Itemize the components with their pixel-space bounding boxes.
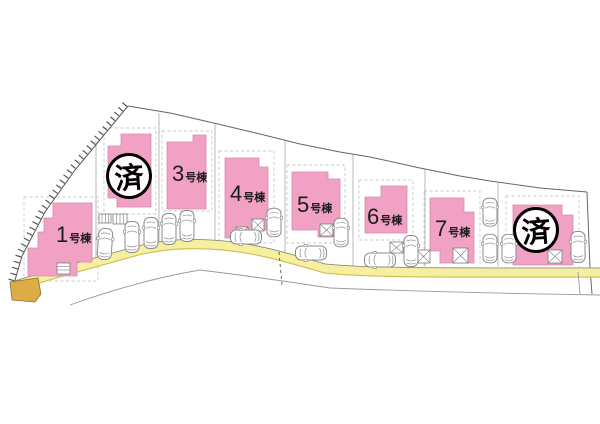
building-7-label: 7号棟	[435, 218, 470, 240]
building-1-number: 1	[56, 224, 68, 246]
shed-icon	[320, 224, 333, 236]
building-4-number: 4	[230, 183, 242, 205]
shed-icon	[548, 250, 562, 263]
shed-icon	[417, 250, 430, 263]
car-icon	[296, 244, 327, 261]
building-5-number: 5	[297, 194, 309, 216]
shed-icon	[453, 248, 468, 263]
building-6-label: 6号棟	[367, 206, 402, 228]
car-icon	[402, 236, 419, 267]
car-icon	[142, 218, 159, 249]
steps-icon	[57, 263, 70, 274]
building-7-number: 7	[435, 218, 447, 240]
car-icon	[569, 232, 586, 263]
car-icon	[265, 208, 282, 237]
shed-icon	[390, 242, 403, 253]
building-4-label: 4号棟	[230, 183, 265, 205]
building-1-label: 1号棟	[56, 224, 91, 246]
car-icon	[481, 234, 498, 263]
shed-icon	[252, 219, 264, 231]
car-icon	[332, 218, 349, 247]
building-5-label: 5号棟	[297, 194, 332, 216]
steps-icon	[99, 214, 111, 223]
car-icon	[178, 211, 195, 242]
building-3-number: 3	[172, 163, 184, 185]
building-3-label: 3号棟	[172, 163, 207, 185]
car-icon	[231, 228, 262, 245]
road-start-patch	[10, 278, 41, 302]
car-icon	[365, 251, 396, 268]
car-icon	[123, 222, 140, 253]
site-plan-image[interactable]: 1号棟 3号棟 4号棟 5号棟 6号棟 7号棟 済 済	[0, 0, 600, 424]
building-6-number: 6	[367, 206, 379, 228]
steps-icon	[113, 214, 127, 224]
car-icon	[160, 214, 177, 245]
car-icon	[481, 198, 498, 226]
